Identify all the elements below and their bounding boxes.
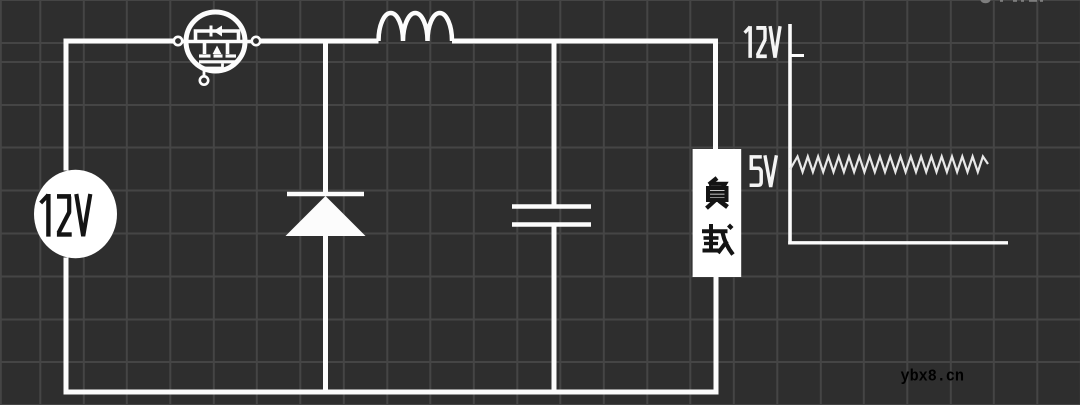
svg-text:ybx8.cn: ybx8.cn — [901, 367, 965, 386]
